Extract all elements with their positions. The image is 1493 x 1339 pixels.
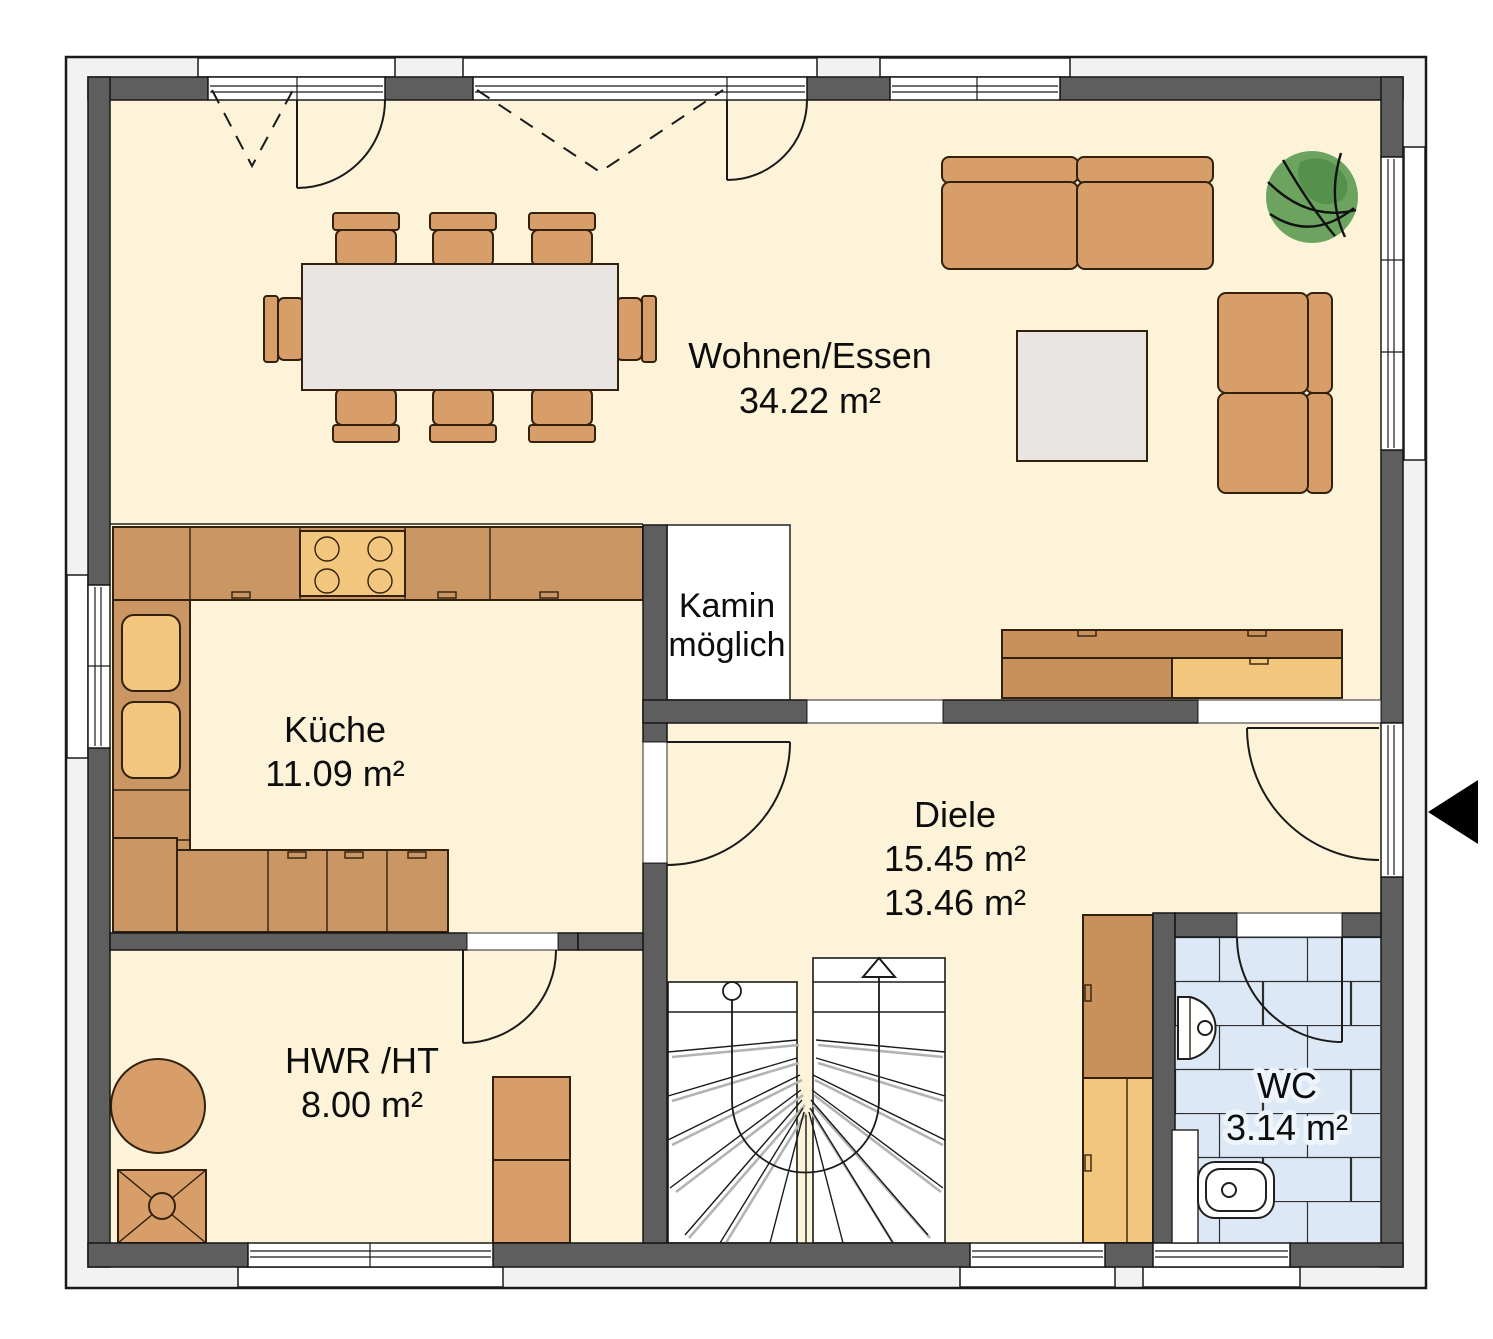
label-wc-area: 3.14 m² [1226, 1107, 1348, 1148]
wall-wc-top-right [1342, 913, 1381, 937]
wall-living-hall-right [943, 700, 1198, 723]
plant [1266, 151, 1358, 243]
wall-kitchen-stairs [643, 863, 667, 1243]
dining-chair [333, 213, 595, 266]
wall-living-hall-left [643, 700, 807, 723]
label-hwr-area: 8.00 m² [301, 1084, 423, 1125]
sofa-right [1218, 293, 1332, 493]
label-kamin-line1: Kamin [679, 587, 775, 625]
window-hwr-bottom [248, 1243, 493, 1267]
label-wohnen: Wohnen/Essen [688, 335, 932, 376]
entry-arrow-icon [1428, 780, 1478, 844]
floor-drain [118, 1170, 206, 1243]
label-wc: WC [1257, 1065, 1317, 1106]
window-wc-bottom [1153, 1243, 1290, 1267]
wardrobe [1083, 915, 1153, 1243]
stove [300, 531, 405, 596]
window-kitchen-left [88, 585, 110, 748]
dining-chair [333, 389, 595, 442]
label-diele-area2: 13.46 m² [884, 882, 1026, 923]
wall-kitchen-hwr [110, 933, 467, 950]
coffee-table [1017, 331, 1147, 461]
label-hwr: HWR /HT [285, 1040, 439, 1081]
passage-living-hall [807, 700, 943, 723]
wc-cistern [1172, 1130, 1198, 1243]
label-kueche-area: 11.09 m² [265, 753, 404, 794]
sideboard [1002, 630, 1342, 698]
sofa-top [942, 157, 1213, 269]
floorplan-drawing: Wohnen/Essen 34.22 m² Küche 11.09 m² Kam… [0, 0, 1493, 1339]
dining-table [302, 264, 618, 390]
wc-toilet [1198, 1162, 1274, 1218]
wall-wc-top-left [1175, 913, 1237, 937]
label-wohnen-area: 34.22 m² [739, 380, 881, 421]
hwr-cabinet [493, 1077, 570, 1243]
window-hall-bottom [970, 1243, 1105, 1267]
label-kamin-line2: möglich [668, 626, 785, 664]
label-diele: Diele [914, 794, 996, 835]
label-kueche: Küche [284, 709, 386, 750]
boiler [111, 1059, 205, 1153]
passage-living-hall-right [1198, 700, 1381, 723]
floorplan-page: Wohnen/Essen 34.22 m² Küche 11.09 m² Kam… [0, 0, 1493, 1339]
label-diele-area1: 15.45 m² [884, 838, 1026, 879]
window-right [1381, 157, 1403, 450]
window-top-right [890, 77, 1060, 100]
